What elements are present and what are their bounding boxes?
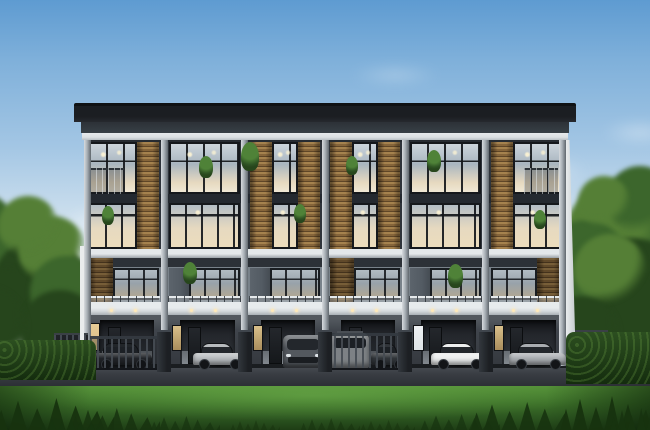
- townhome-unit-3-downlight-1: [271, 309, 274, 312]
- townhome-unit-1-wood-slat-upper-right: [137, 142, 159, 249]
- car-wheel-front: [516, 359, 527, 370]
- gate-post-1: [157, 330, 171, 372]
- townhome-unit-5-window-floor3: [410, 203, 480, 249]
- balcony-plant-7: [183, 262, 197, 284]
- townhome-unit-2-lit-window: [172, 325, 182, 351]
- car-grille: [288, 357, 318, 363]
- townhome-unit-6-balcony-rail-floor2: [490, 296, 562, 302]
- townhome-unit-5-window-floor4: [410, 142, 480, 194]
- townhome-unit-4-downlight-1: [351, 309, 354, 312]
- pillar-7: [559, 140, 566, 366]
- car-3-suv: [283, 335, 323, 368]
- balcony-plant-5: [102, 206, 114, 225]
- townhome-unit-3-lit-window: [253, 325, 263, 351]
- townhome-unit-2-window-floor3: [169, 203, 239, 249]
- hedge-left: [0, 340, 96, 380]
- townhome-unit-1-downlight-2: [134, 309, 137, 312]
- car-7-sedan: [509, 343, 566, 368]
- hedge-right: [566, 332, 650, 384]
- balcony-plant-4: [427, 150, 441, 172]
- car-wheel-rear: [550, 359, 561, 370]
- gate-post-5: [479, 330, 493, 372]
- townhome-unit-3-window-floor4: [272, 142, 298, 194]
- townhome-unit-3-downlight-2: [295, 309, 298, 312]
- townhome-building: [0, 0, 650, 430]
- townhome-unit-4-wood-slat-upper-right: [378, 142, 400, 249]
- townhome-unit-6-balcony-rail-floor4: [524, 168, 558, 194]
- townhome-unit-4-downlight-2: [375, 309, 378, 312]
- gate-post-4: [398, 330, 412, 372]
- car-windshield: [287, 339, 319, 350]
- flat-roof: [74, 103, 576, 122]
- balcony-plant-9: [534, 210, 546, 229]
- roof-underside: [81, 122, 569, 133]
- balcony-plant-6: [294, 204, 306, 223]
- balcony-plant-3: [346, 156, 358, 175]
- townhome-unit-6-lit-window: [494, 325, 504, 351]
- townhome-unit-5-lit-window: [413, 325, 424, 351]
- townhome-unit-4-balcony-rail-floor2: [329, 296, 401, 302]
- townhome-unit-3-entry-door: [269, 327, 282, 364]
- carport-gate-1: [90, 336, 160, 370]
- carport-gate-2: [327, 333, 403, 370]
- townhome-unit-1-balcony-rail-floor2: [88, 296, 160, 302]
- gate-post-2: [238, 330, 252, 372]
- townhome-unit-5-balcony-rail-floor2: [409, 296, 481, 302]
- car-wheel-front: [438, 359, 449, 370]
- balcony-plant-2: [241, 142, 259, 171]
- townhome-unit-2-balcony-rail-floor2: [168, 296, 240, 302]
- townhome-unit-1-downlight-1: [110, 309, 113, 312]
- townhome-unit-1-balcony-rail-floor4: [90, 168, 124, 194]
- townhome-unit-6-downlight-1: [512, 309, 515, 312]
- townhome-unit-6-wood-slat-upper-left: [491, 142, 513, 249]
- scene: [0, 0, 650, 430]
- gate-post-3: [318, 330, 332, 372]
- balcony-plant-1: [199, 156, 213, 178]
- car-headlight-left: [286, 354, 291, 357]
- townhome-unit-4-window-floor3: [352, 203, 378, 249]
- balcony-plant-8: [448, 264, 463, 288]
- townhome-unit-3-wood-slat-upper-right: [298, 142, 320, 249]
- townhome-unit-3-balcony-rail-floor2: [249, 296, 321, 302]
- townhome-unit-6-downlight-2: [536, 309, 539, 312]
- white-fascia-band: [82, 133, 568, 140]
